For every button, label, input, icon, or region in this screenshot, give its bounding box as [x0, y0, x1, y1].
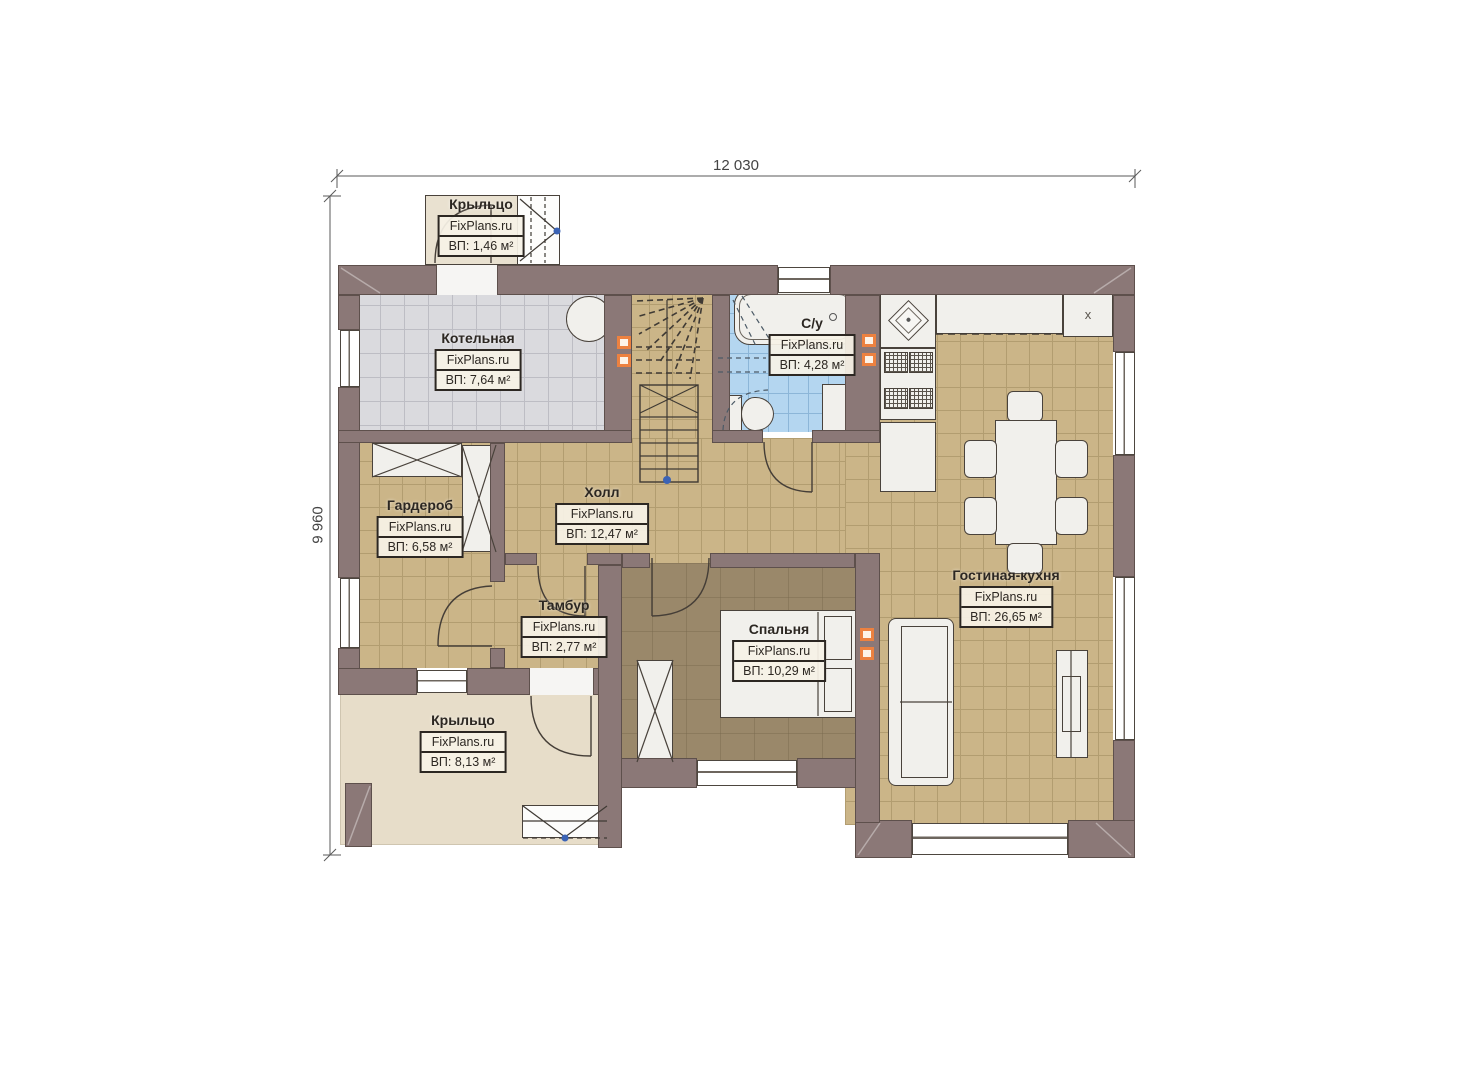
dining-chair	[1055, 440, 1088, 478]
stove-burner	[909, 352, 933, 373]
room-name: Котельная	[435, 330, 522, 346]
stove-burner	[909, 388, 933, 409]
room-area: ВП: 4,28 м²	[771, 354, 854, 374]
dining-chair	[964, 440, 997, 478]
kitchen-counter-appliance: x	[1063, 292, 1113, 337]
floor-plan: 12 030 9 960 x	[0, 0, 1473, 1080]
dimension-width: 12 030	[713, 157, 759, 174]
sink-diamond	[888, 300, 929, 341]
watermark: FixPlans.ru	[771, 336, 854, 354]
room-area: ВП: 10,29 м²	[734, 660, 824, 680]
wall-segment	[710, 553, 855, 568]
room-label-wardrobe: Гардероб FixPlans.ru ВП: 6,58 м²	[377, 497, 464, 558]
room-name: Тамбур	[521, 597, 608, 613]
door-opening	[437, 265, 497, 295]
vent-marker	[617, 336, 631, 349]
room-area: ВП: 26,65 м²	[961, 606, 1051, 626]
wall-segment	[338, 387, 360, 578]
sofa	[888, 618, 954, 786]
wall-segment	[338, 668, 417, 695]
room-area: ВП: 7,64 м²	[437, 369, 520, 389]
wall-segment	[812, 430, 880, 443]
room-name: Крыльцо	[438, 196, 525, 212]
wall-segment	[622, 553, 650, 568]
window	[340, 330, 360, 387]
room-name: Крыльцо	[420, 712, 507, 728]
wall-segment	[467, 668, 530, 695]
room-area: ВП: 12,47 м²	[557, 523, 647, 543]
wall-segment	[604, 295, 632, 443]
dining-chair	[1055, 497, 1088, 535]
window	[417, 670, 467, 693]
room-name: Спальня	[732, 621, 826, 637]
watermark: FixPlans.ru	[523, 618, 606, 636]
wall-segment	[615, 758, 697, 788]
watermark: FixPlans.ru	[557, 505, 647, 523]
room-label-bathroom: С/у FixPlans.ru ВП: 4,28 м²	[769, 315, 856, 376]
dining-table	[995, 420, 1057, 545]
tv-screen	[1062, 676, 1081, 732]
door-opening	[530, 668, 593, 695]
porch-bottom-steps	[522, 805, 608, 838]
stairwell-floor	[626, 281, 714, 443]
wall-segment	[490, 443, 505, 582]
wall-segment	[855, 553, 880, 823]
watermark: FixPlans.ru	[961, 588, 1051, 606]
bedroom-wardrobe	[637, 660, 673, 762]
room-area: ВП: 6,58 м²	[379, 536, 462, 556]
dining-chair	[1007, 391, 1043, 422]
room-area: ВП: 8,13 м²	[422, 751, 505, 771]
wall-segment	[587, 553, 622, 565]
vent-marker	[862, 353, 876, 366]
wall-segment	[855, 820, 912, 858]
vent-marker	[860, 628, 874, 641]
watermark: FixPlans.ru	[440, 217, 523, 235]
room-label-boiler: Котельная FixPlans.ru ВП: 7,64 м²	[435, 330, 522, 391]
wall-segment	[1113, 455, 1135, 577]
kitchen-lower-cabinet	[880, 422, 936, 492]
room-area: ВП: 2,77 м²	[523, 636, 606, 656]
wall-segment	[1113, 295, 1135, 352]
watermark: FixPlans.ru	[437, 351, 520, 369]
window	[778, 267, 830, 293]
room-name: Гостиная-кухня	[952, 567, 1059, 583]
porch-pillar	[345, 783, 372, 847]
window	[912, 823, 1068, 855]
room-label-hall: Холл FixPlans.ru ВП: 12,47 м²	[555, 484, 649, 545]
room-name: Холл	[555, 484, 649, 500]
pillow	[824, 668, 852, 712]
wall-segment	[712, 430, 763, 443]
kitchen-corner-sink-base	[880, 292, 936, 348]
watermark: FixPlans.ru	[379, 518, 462, 536]
wall-segment	[830, 265, 1135, 295]
pillow	[824, 616, 852, 660]
wall-segment	[497, 265, 778, 295]
room-area: ВП: 1,46 м²	[440, 235, 523, 255]
wall-segment	[338, 430, 632, 443]
stove-burner	[884, 352, 908, 373]
room-label-porch-top: Крыльцо FixPlans.ru ВП: 1,46 м²	[438, 196, 525, 257]
vent-marker	[862, 334, 876, 347]
window	[697, 760, 797, 786]
wardrobe-cabinet-horizontal	[372, 443, 462, 477]
window	[1115, 352, 1135, 455]
wall-segment	[338, 265, 437, 295]
window	[1115, 577, 1135, 740]
wall-segment	[490, 648, 505, 668]
room-label-living-kitchen: Гостиная-кухня FixPlans.ru ВП: 26,65 м²	[952, 567, 1059, 628]
watermark: FixPlans.ru	[734, 642, 824, 660]
watermark: FixPlans.ru	[422, 733, 505, 751]
vent-marker	[617, 354, 631, 367]
kitchen-x-marker: x	[1085, 307, 1092, 322]
kitchen-counter	[936, 292, 1063, 334]
wall-segment	[712, 295, 730, 443]
room-name: Гардероб	[377, 497, 464, 513]
dining-chair	[964, 497, 997, 535]
stove-burner	[884, 388, 908, 409]
wall-segment	[338, 295, 360, 330]
vent-marker	[860, 647, 874, 660]
room-name: С/у	[769, 315, 856, 331]
wall-segment	[505, 553, 537, 565]
dimension-height: 9 960	[310, 506, 327, 544]
window	[340, 578, 360, 648]
room-label-vestibule: Тамбур FixPlans.ru ВП: 2,77 м²	[521, 597, 608, 658]
sofa-seat	[901, 626, 948, 778]
room-label-bedroom: Спальня FixPlans.ru ВП: 10,29 м²	[732, 621, 826, 682]
wall-segment	[1068, 820, 1135, 858]
room-label-porch-bottom: Крыльцо FixPlans.ru ВП: 8,13 м²	[420, 712, 507, 773]
